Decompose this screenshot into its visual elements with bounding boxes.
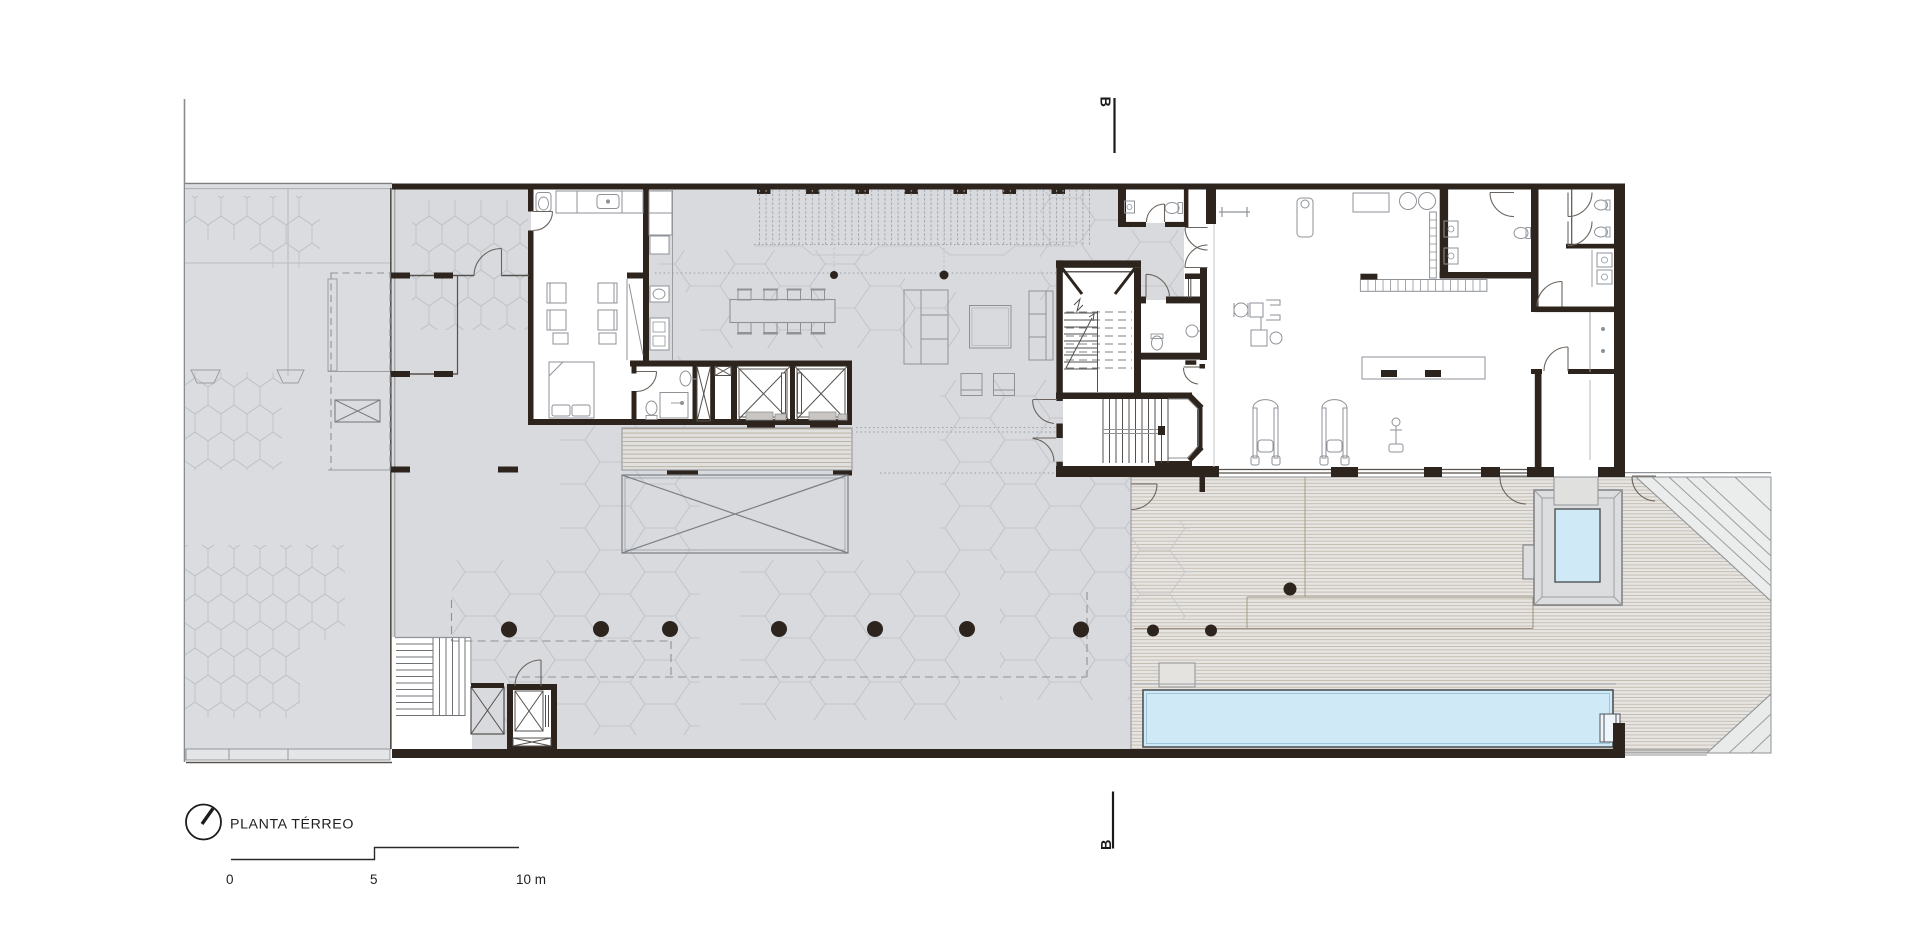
- svg-text:B: B: [1099, 840, 1115, 850]
- svg-text:B: B: [1097, 97, 1113, 107]
- svg-text:PLANTA TÉRREO: PLANTA TÉRREO: [230, 816, 354, 833]
- svg-text:0: 0: [226, 872, 234, 887]
- svg-text:10 m: 10 m: [516, 872, 546, 887]
- svg-text:5: 5: [370, 872, 378, 887]
